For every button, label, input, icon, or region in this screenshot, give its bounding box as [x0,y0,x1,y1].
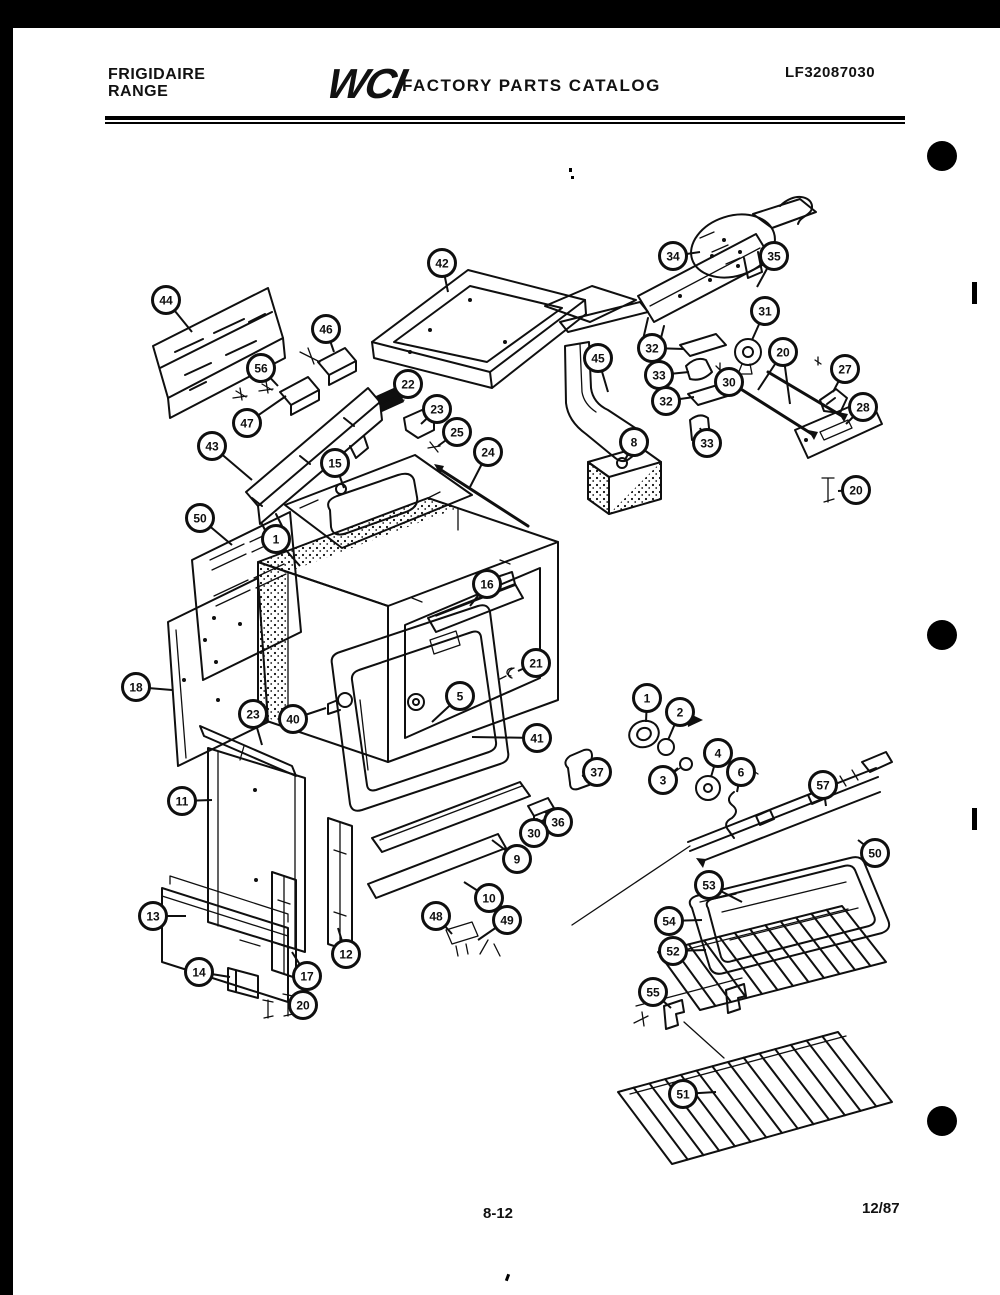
svg-text:1: 1 [644,692,651,706]
part-callout-28: 28 [846,394,877,425]
part-callout-54: 54 [656,908,703,935]
part-callout-40: 40 [280,706,327,733]
svg-text:23: 23 [246,708,260,722]
svg-text:21: 21 [529,657,543,671]
upper-rack-drawing [658,906,886,1010]
part-callout-55: 55 [640,979,672,1009]
part-callout-1: 1 [634,685,661,723]
svg-text:4: 4 [715,747,722,761]
svg-text:49: 49 [500,914,514,928]
svg-text:22: 22 [401,378,415,392]
svg-text:23: 23 [430,403,444,417]
svg-text:41: 41 [530,732,544,746]
part-callout-30: 30 [716,369,743,396]
part-callout-27: 27 [832,356,859,393]
svg-text:43: 43 [205,440,219,454]
part-callout-11: 11 [169,788,213,815]
svg-text:32: 32 [645,342,659,356]
svg-text:1: 1 [273,533,280,547]
svg-text:3: 3 [660,774,667,788]
svg-text:35: 35 [767,250,781,264]
part-callout-24: 24 [470,439,502,488]
svg-text:55: 55 [646,986,660,1000]
svg-text:45: 45 [591,352,605,366]
svg-text:20: 20 [849,484,863,498]
part-callout-13: 13 [140,903,187,930]
exploded-view-diagram: 4446564743422223252415458343531323332302… [0,0,1000,1295]
part-callout-3: 3 [650,767,679,794]
svg-text:51: 51 [676,1088,690,1102]
svg-text:25: 25 [450,426,464,440]
part-callout-21: 21 [518,650,550,677]
part-callout-8: 8 [621,429,648,461]
svg-text:46: 46 [319,323,333,337]
svg-text:8: 8 [631,436,638,450]
catalog-page: FRIGIDAIRE RANGE WCI FACTORY PARTS CATAL… [0,0,1000,1295]
svg-text:47: 47 [240,417,254,431]
svg-text:30: 30 [722,376,736,390]
part-callout-37: 37 [582,759,611,786]
part-callout-56: 56 [248,355,279,387]
svg-text:33: 33 [652,369,666,383]
part-callout-44: 44 [153,287,193,333]
part-callout-20: 20 [290,992,317,1019]
svg-text:44: 44 [159,294,173,308]
back-panel-drawing [208,748,305,952]
part-callout-48: 48 [423,903,453,935]
svg-text:28: 28 [856,401,870,415]
svg-text:18: 18 [129,681,143,695]
svg-text:17: 17 [300,970,314,984]
part-callout-32: 32 [639,335,685,362]
svg-text:27: 27 [838,363,852,377]
svg-text:30: 30 [527,827,541,841]
svg-text:13: 13 [146,910,160,924]
svg-text:12: 12 [339,948,353,962]
part-callout-43: 43 [199,433,253,481]
part-callout-34: 34 [660,243,701,270]
part-callout-31: 31 [752,298,779,341]
part-callout-10: 10 [464,882,503,912]
part-callout-20: 20 [758,339,797,405]
svg-text:37: 37 [590,766,604,780]
part-callout-30: 30 [521,820,548,847]
part-callout-16: 16 [470,571,501,607]
motor-assembly-drawing [638,197,816,350]
oven-door-drawing [332,605,514,811]
svg-text:15: 15 [328,457,342,471]
part-callout-18: 18 [123,674,173,701]
part-callout-12: 12 [333,928,360,968]
part-callout-57: 57 [810,772,837,807]
part-callout-42: 42 [429,250,456,293]
part-callout-33: 33 [646,362,690,389]
svg-text:42: 42 [435,257,449,271]
svg-text:11: 11 [176,795,189,809]
svg-text:50: 50 [868,847,882,861]
svg-text:36: 36 [551,816,565,830]
svg-text:54: 54 [662,915,676,929]
part-callout-45: 45 [585,345,612,393]
part-callout-22: 22 [392,371,422,403]
svg-text:2: 2 [677,706,684,720]
svg-text:53: 53 [702,879,716,893]
svg-text:31: 31 [758,305,772,319]
part-callout-50: 50 [858,840,889,867]
svg-text:6: 6 [738,766,745,780]
part-callout-50: 50 [187,505,233,546]
part-callout-2: 2 [667,699,694,741]
svg-text:40: 40 [286,713,300,727]
svg-text:48: 48 [429,910,443,924]
part-callout-32: 32 [653,388,695,415]
part-callout-51: 51 [670,1081,717,1108]
svg-text:20: 20 [296,999,310,1013]
part-callout-33: 33 [694,428,721,457]
svg-text:16: 16 [480,578,494,592]
part-callout-17: 17 [292,952,321,990]
svg-text:9: 9 [514,853,521,867]
svg-text:5: 5 [457,690,464,704]
svg-text:57: 57 [816,779,830,793]
svg-text:10: 10 [482,892,496,906]
part-callout-6: 6 [728,759,755,793]
svg-text:33: 33 [700,437,714,451]
part-callout-47: 47 [234,396,287,437]
drawer-front-drawing [162,876,288,1018]
hinge-parts-drawing [376,386,528,526]
callout-layer: 4446564743422223252415458343531323332302… [123,243,889,1108]
svg-text:32: 32 [659,395,673,409]
part-callout-46: 46 [313,316,340,353]
lower-rack-drawing [618,1032,892,1164]
part-callout-41: 41 [472,725,551,752]
part-callout-20: 20 [838,477,870,504]
part-callout-23: 23 [421,396,451,425]
svg-text:34: 34 [666,250,680,264]
svg-text:20: 20 [776,346,790,360]
svg-text:14: 14 [192,966,206,980]
part-callout-9: 9 [492,840,531,873]
svg-text:52: 52 [666,945,680,959]
part-callout-23: 23 [240,701,267,746]
burner-box-drawing [588,447,661,514]
svg-text:24: 24 [481,446,495,460]
svg-text:56: 56 [254,362,268,376]
svg-text:50: 50 [193,512,207,526]
